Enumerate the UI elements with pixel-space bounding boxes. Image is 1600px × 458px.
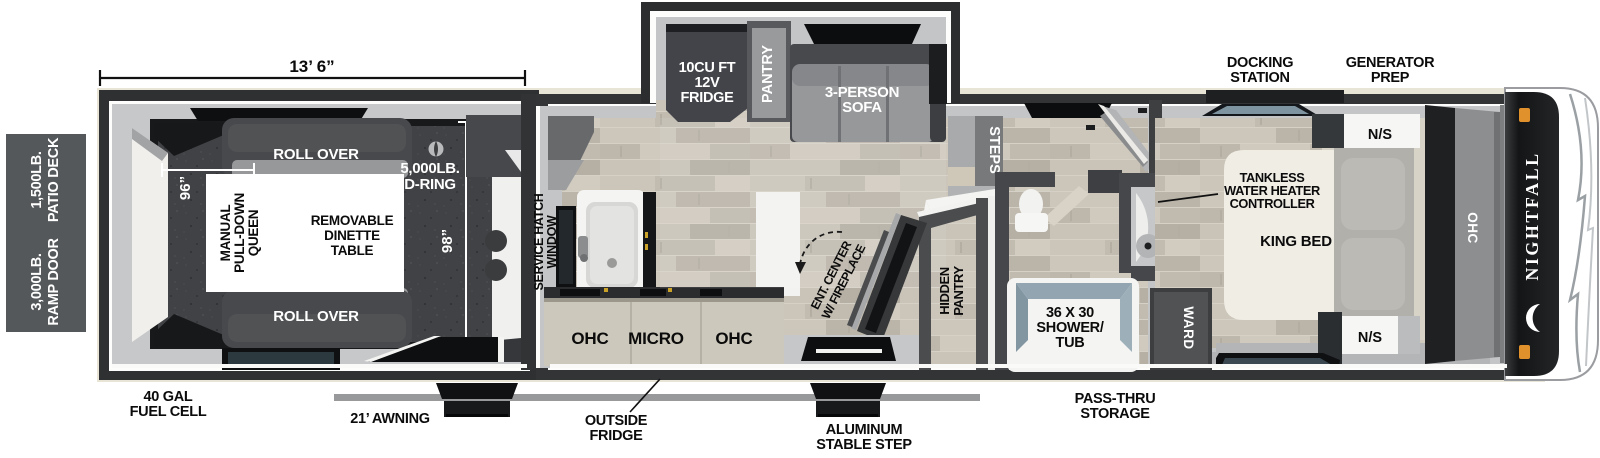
svg-text:N/S: N/S <box>1358 330 1383 346</box>
svg-text:OUTSIDEFRIDGE: OUTSIDEFRIDGE <box>585 413 648 444</box>
svg-text:OHC: OHC <box>715 329 752 348</box>
svg-text:OHC: OHC <box>571 329 608 348</box>
svg-text:ROLL OVER: ROLL OVER <box>273 308 359 325</box>
svg-text:NIGHTFALL: NIGHTFALL <box>1522 151 1542 280</box>
svg-text:ALUMINUMSTABLE STEP: ALUMINUMSTABLE STEP <box>816 422 912 453</box>
svg-text:PANTRY: PANTRY <box>760 45 776 103</box>
svg-text:WARD: WARD <box>1181 306 1196 349</box>
svg-text:STEPS: STEPS <box>986 126 1002 174</box>
svg-text:96”: 96” <box>177 176 194 200</box>
svg-text:ROLL OVER: ROLL OVER <box>273 146 359 163</box>
svg-text:13’ 6”: 13’ 6” <box>289 57 334 76</box>
svg-text:98”: 98” <box>439 229 456 253</box>
svg-text:OHC: OHC <box>1465 212 1480 244</box>
svg-text:DOCKINGSTATION: DOCKINGSTATION <box>1227 55 1293 86</box>
svg-text:N/S: N/S <box>1368 127 1393 143</box>
svg-text:PASS-THRUSTORAGE: PASS-THRUSTORAGE <box>1075 391 1156 422</box>
svg-text:MICRO: MICRO <box>628 329 684 348</box>
svg-text:HIDDENPANTRY: HIDDENPANTRY <box>937 265 966 315</box>
svg-text:5,000LB.D-RING: 5,000LB.D-RING <box>400 160 459 193</box>
svg-text:21’ AWNING: 21’ AWNING <box>350 411 429 427</box>
svg-text:KING BED: KING BED <box>1260 233 1332 250</box>
